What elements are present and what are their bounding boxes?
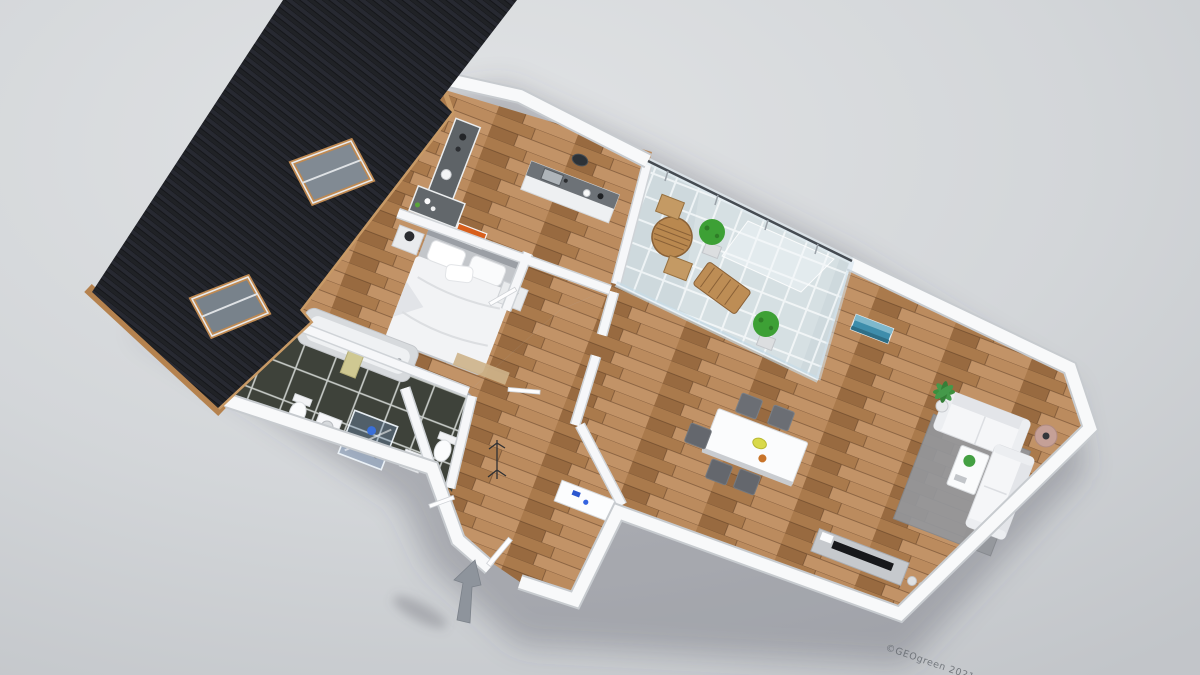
screenshot-root: ©GEOgreen 2021 <box>0 0 1200 675</box>
vase <box>908 577 917 586</box>
accent-pillow <box>445 264 474 283</box>
floorplan-render: ©GEOgreen 2021 <box>0 0 1200 675</box>
floor-lamp <box>1035 425 1057 447</box>
